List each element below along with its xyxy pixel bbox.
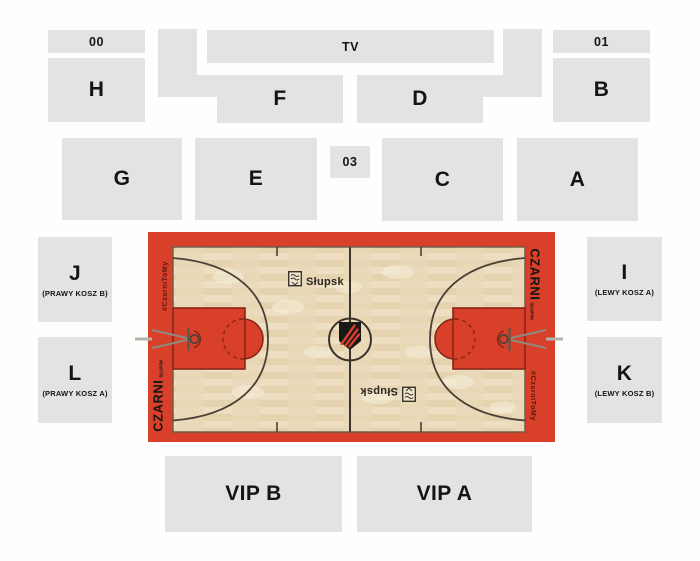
section-label: J [69,262,81,286]
section-vip-a[interactable]: VIP A [357,456,532,532]
section-b[interactable]: B [553,58,650,122]
section-label: B [594,78,610,102]
section-label: TV [342,40,359,54]
section-label: L [68,362,81,386]
section-label: 03 [343,155,358,169]
arena-seating-map: 00 H TV 01 B F D G E 03 C A J (PRAWY KOS… [0,0,700,561]
section-label: C [435,168,451,192]
section-label: 00 [89,35,104,49]
section-l[interactable]: L (PRAWY KOSZ A) [38,337,112,423]
basketball-court [148,232,555,442]
team-wordmark: CZARNI SŁUPSK [528,257,543,313]
section-label: H [89,78,105,102]
section-label: F [273,87,286,111]
section-a[interactable]: A [517,138,638,221]
section-label: D [412,87,428,111]
team-wordmark: CZARNI SŁUPSK [151,368,166,424]
section-j[interactable]: J (PRAWY KOSZ B) [38,237,112,322]
section-label: VIP B [225,482,282,506]
section-03[interactable]: 03 [330,146,370,178]
section-h[interactable]: H [48,58,145,122]
section-sublabel: (PRAWY KOSZ B) [42,289,108,298]
section-label: A [570,168,586,192]
city-label: Słupsk [358,381,416,401]
section-sublabel: (LEWY KOSZ B) [595,389,655,398]
section-label: 01 [594,35,609,49]
section-label: G [114,167,131,191]
section-label: I [621,261,627,285]
city-label: Słupsk [288,272,346,292]
section-sublabel: (LEWY KOSZ A) [595,288,654,297]
section-label: K [617,362,633,386]
court-graphic [148,232,555,442]
section-label: VIP A [417,482,473,506]
section-c[interactable]: C [382,138,503,221]
section-01[interactable]: 01 [553,30,650,53]
section-g[interactable]: G [62,138,182,220]
section-i[interactable]: I (LEWY KOSZ A) [587,237,662,321]
section-sublabel: (PRAWY KOSZ A) [42,389,107,398]
hashtag-label: #CzarniToMy [528,359,538,433]
hashtag-label: #CzarniToMy [160,249,170,323]
section-tv[interactable]: TV [207,30,494,63]
slupsk-crest-icon [288,271,302,293]
slupsk-crest-icon [402,380,416,402]
section-label: E [249,167,263,191]
section-vip-b[interactable]: VIP B [165,456,342,532]
section-00[interactable]: 00 [48,30,145,53]
section-k[interactable]: K (LEWY KOSZ B) [587,337,662,423]
section-e[interactable]: E [195,138,317,220]
